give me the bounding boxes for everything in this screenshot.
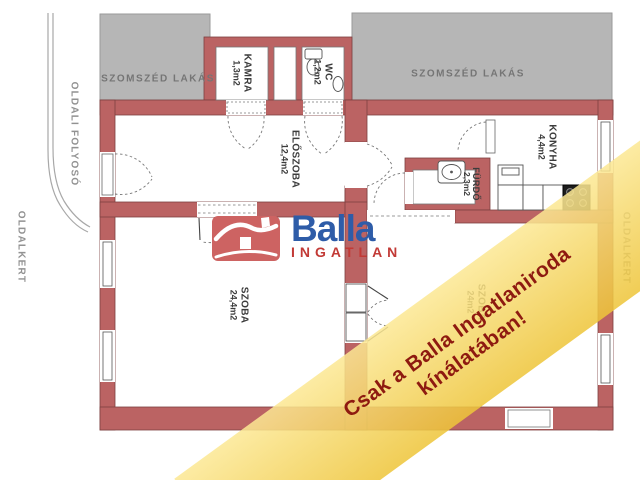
balla-ingatlan-logo: Balla INGATLAN: [212, 216, 402, 261]
neighbor-right-label: SZOMSZÉD LAKÁS: [411, 69, 525, 80]
szoba-door-gap: [197, 202, 257, 217]
room-label-szoba-left: SZOBA 24,4m2: [228, 287, 249, 324]
room-label-kamra: KAMRA 1,3m2: [231, 54, 252, 93]
logo-brand: Balla: [291, 210, 402, 247]
room-label-wc: WC 1,2m2: [312, 59, 333, 85]
logo-subtitle: INGATLAN: [291, 244, 402, 260]
entry-door-arc: [115, 154, 152, 177]
neighbor-left-label: SZOMSZÉD LAKÁS: [101, 74, 215, 85]
neighbor-block-left: [100, 14, 210, 100]
double-door-arc-top: [368, 300, 388, 312]
furdo-door-gap: [405, 172, 413, 204]
bottom-wall-opening: [505, 408, 553, 429]
side-garden-left-label: OLDALKERT: [16, 211, 27, 283]
room-label-konyha: KONYHA 4,4m2: [536, 124, 557, 169]
floorplan-image: SZOMSZÉD LAKÁS SZOMSZÉD LAKÁS OLDALI FOL…: [0, 0, 640, 480]
neighbor-block-right: [352, 13, 612, 100]
house-logo-icon: [212, 216, 280, 261]
hall-doorway-arc: [367, 144, 392, 165]
wc-sink-icon: [333, 77, 343, 92]
furdo-door-arc: [374, 173, 405, 204]
window-right-szoba: [598, 333, 613, 385]
wc-door-arc: [305, 116, 322, 154]
kamra-door-arc: [228, 116, 246, 149]
room-label-furdo: FÜRDŐ 2,3m2: [461, 167, 481, 201]
window-left-2: [100, 330, 115, 382]
hall-doorway-gap: [345, 142, 367, 188]
side-corridor-label: OLDALI FOLYOSÓ: [69, 82, 80, 187]
window-left-1: [100, 240, 115, 288]
kitchen-door-arc: [458, 122, 486, 150]
room-label-eloszoba: ELŐSZOBA 12,4m2: [279, 130, 300, 188]
logo-text: Balla INGATLAN: [291, 210, 402, 260]
kitchen-door-frame: [486, 120, 495, 153]
